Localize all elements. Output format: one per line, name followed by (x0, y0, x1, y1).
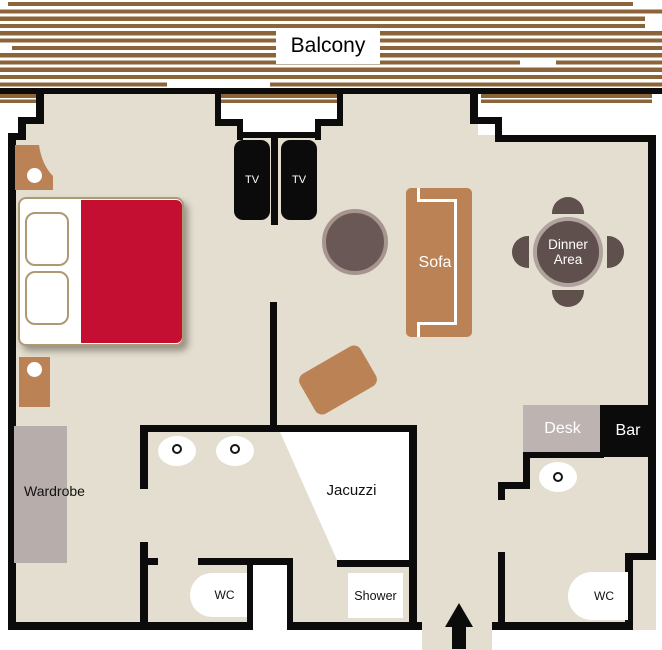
tv-left: TV (234, 140, 270, 220)
sofa-label: Sofa (406, 188, 472, 337)
dining-table: Dinner Area (533, 217, 603, 287)
plank-gap (0, 0, 8, 7)
bar-label: Bar (616, 422, 641, 440)
shower: Shower (348, 573, 403, 618)
wall-bathroom (140, 425, 417, 432)
wall-segment (495, 135, 656, 142)
bed-cover (81, 200, 182, 343)
desk: Desk (523, 405, 602, 452)
dinner-area-label-line1: Dinner (548, 237, 588, 252)
tv-left-label: TV (245, 174, 259, 186)
pillow (25, 271, 69, 325)
faucet-icon (172, 444, 182, 454)
floor-plan: Balcony (0, 0, 662, 650)
wc-label: WC (215, 588, 235, 602)
faucet-icon (230, 444, 240, 454)
wall-segment (243, 132, 315, 138)
desk-label: Desk (544, 420, 580, 438)
wall-bathroom (140, 425, 148, 489)
wall-bathroom (148, 558, 158, 565)
deck-strip (481, 94, 652, 103)
plank-gap (167, 80, 270, 88)
plank-gap (520, 58, 556, 65)
dinner-area-label-line2: Area (548, 252, 588, 267)
wall-bottom (287, 622, 422, 630)
bar: Bar (600, 405, 656, 457)
wall-bottom (492, 622, 633, 630)
shower-label: Shower (354, 589, 396, 603)
lamp-icon (27, 168, 42, 183)
wall-bathroom (409, 425, 417, 630)
sofa: Sofa (406, 188, 472, 337)
plank-gap (645, 14, 662, 28)
wall-wc (198, 558, 293, 565)
toilet: WC (190, 573, 247, 617)
wall-segment (315, 119, 321, 140)
balcony-label-text: Balcony (291, 34, 366, 58)
balcony-label: Balcony (276, 28, 380, 64)
wall-bathroom (337, 560, 409, 567)
wall-tv-partition (271, 132, 278, 225)
wall-segment (498, 482, 505, 500)
wall-segment (498, 552, 505, 630)
wall-bottom (8, 622, 253, 630)
outside-area (8, 117, 18, 133)
lamp-icon (27, 362, 42, 377)
faucet-icon (553, 472, 563, 482)
wall-divider (270, 302, 277, 432)
wc-right-label: WC (594, 589, 614, 603)
tv-right: TV (281, 140, 317, 220)
bed (18, 197, 184, 346)
wall-right (648, 135, 656, 560)
light-shaft (253, 565, 287, 650)
tv-right-label: TV (292, 174, 306, 186)
wall-segment (0, 88, 662, 94)
wall-wc (287, 565, 293, 630)
toilet: WC (568, 572, 628, 620)
coffee-table (322, 209, 388, 275)
pillow (25, 212, 69, 266)
wall-segment (470, 94, 478, 124)
wall-bathroom (140, 542, 148, 630)
deck-strip (221, 94, 337, 103)
entrance-arrow-icon (443, 602, 477, 650)
wardrobe-label: Wardrobe (24, 483, 85, 499)
plank-gap (633, 0, 662, 7)
plank-gap (0, 44, 12, 52)
